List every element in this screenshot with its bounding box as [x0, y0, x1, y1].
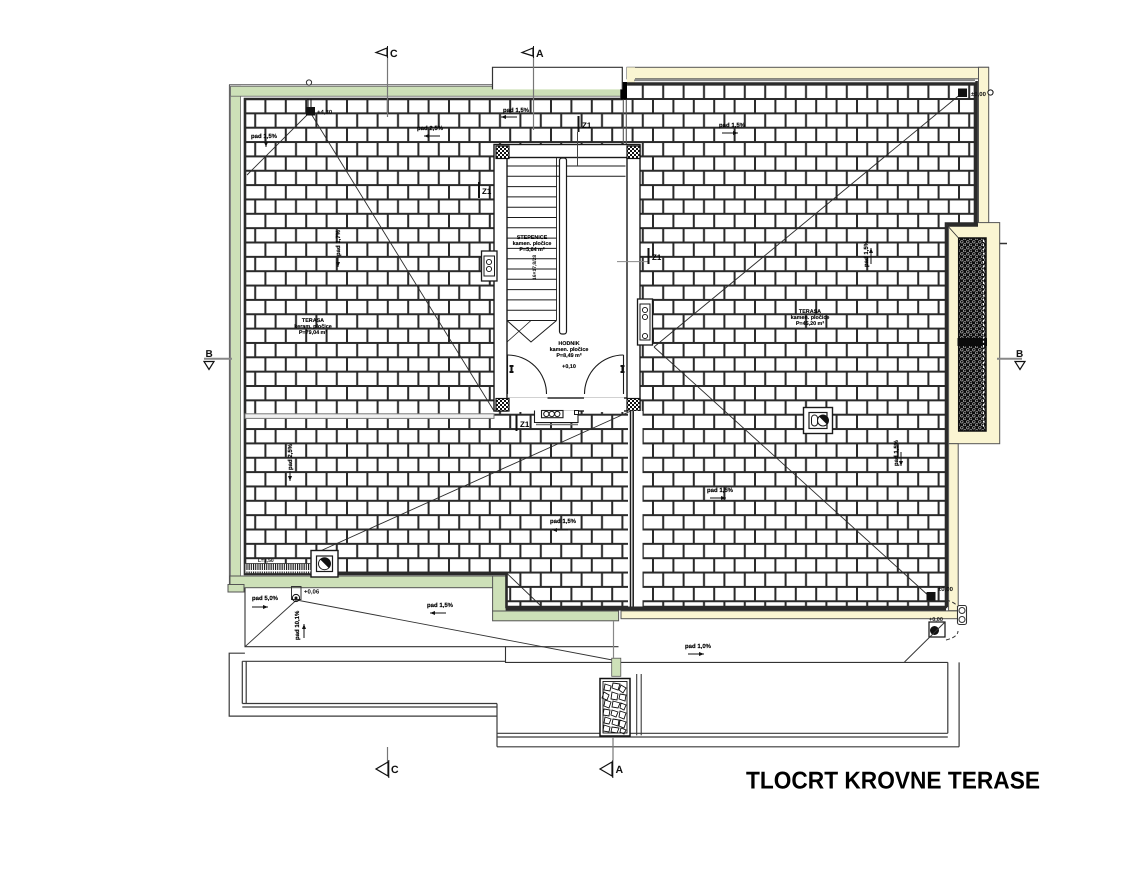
svg-text:±0,00: ±0,00: [938, 586, 954, 593]
svg-text:pad 10,1%: pad 10,1%: [294, 610, 301, 640]
svg-text:+0,06: +0,06: [304, 589, 320, 596]
svg-text:16×17,8/28: 16×17,8/28: [532, 255, 538, 280]
svg-text:A: A: [536, 48, 544, 60]
svg-text:+4,30: +4,30: [317, 109, 333, 116]
svg-text:pad 1,5%: pad 1,5%: [707, 487, 734, 494]
svg-text:Z1: Z1: [582, 121, 592, 130]
svg-text:pad 1,5%: pad 1,5%: [427, 602, 454, 609]
svg-text:pad 1,5%: pad 1,5%: [719, 122, 746, 129]
svg-text:pad 1,5%: pad 1,5%: [503, 107, 530, 114]
svg-text:pad 1,5%: pad 1,5%: [251, 133, 278, 140]
svg-text:P=45,20 m²: P=45,20 m²: [796, 321, 825, 327]
svg-text:pad 1,5%: pad 1,5%: [550, 518, 577, 525]
svg-text:pad 1,5%: pad 1,5%: [863, 240, 870, 267]
svg-text:Z1: Z1: [520, 420, 530, 429]
svg-text:keram. pločice: keram. pločice: [294, 323, 331, 330]
svg-text:C: C: [391, 764, 399, 776]
svg-text:pad 1,7%: pad 1,7%: [335, 229, 342, 256]
svg-text:P=8,49 m²: P=8,49 m²: [556, 353, 582, 359]
svg-text:B: B: [1016, 349, 1023, 360]
svg-text:A: A: [616, 764, 624, 776]
svg-text:pad 1,0%: pad 1,0%: [685, 643, 712, 650]
svg-text:L=1,50: L=1,50: [258, 558, 274, 564]
svg-text:Z1: Z1: [652, 253, 662, 262]
svg-text:Z1: Z1: [482, 187, 492, 196]
svg-text:kamen. pločice: kamen. pločice: [550, 346, 589, 353]
svg-text:kamen. pločice: kamen. pločice: [513, 240, 552, 247]
svg-text:C: C: [390, 48, 398, 60]
svg-text:pad 2,5%: pad 2,5%: [287, 443, 294, 470]
svg-text:±0,00: ±0,00: [971, 91, 987, 98]
svg-text:pad 5,0%: pad 5,0%: [252, 595, 279, 602]
svg-text:pad 1,5%: pad 1,5%: [893, 439, 900, 466]
svg-text:kamen. pločice: kamen. pločice: [791, 314, 830, 321]
svg-text:P=5,64 m²: P=5,64 m²: [519, 247, 545, 253]
svg-text:P=79,04 m²: P=79,04 m²: [299, 330, 328, 336]
svg-text:+0,00: +0,00: [929, 617, 943, 623]
svg-text:+0,10: +0,10: [562, 364, 576, 370]
svg-text:B: B: [206, 349, 213, 360]
svg-text:pad 2,5%: pad 2,5%: [417, 125, 444, 132]
svg-text:TLOCRT KROVNE TERASE: TLOCRT KROVNE TERASE: [746, 768, 1040, 795]
